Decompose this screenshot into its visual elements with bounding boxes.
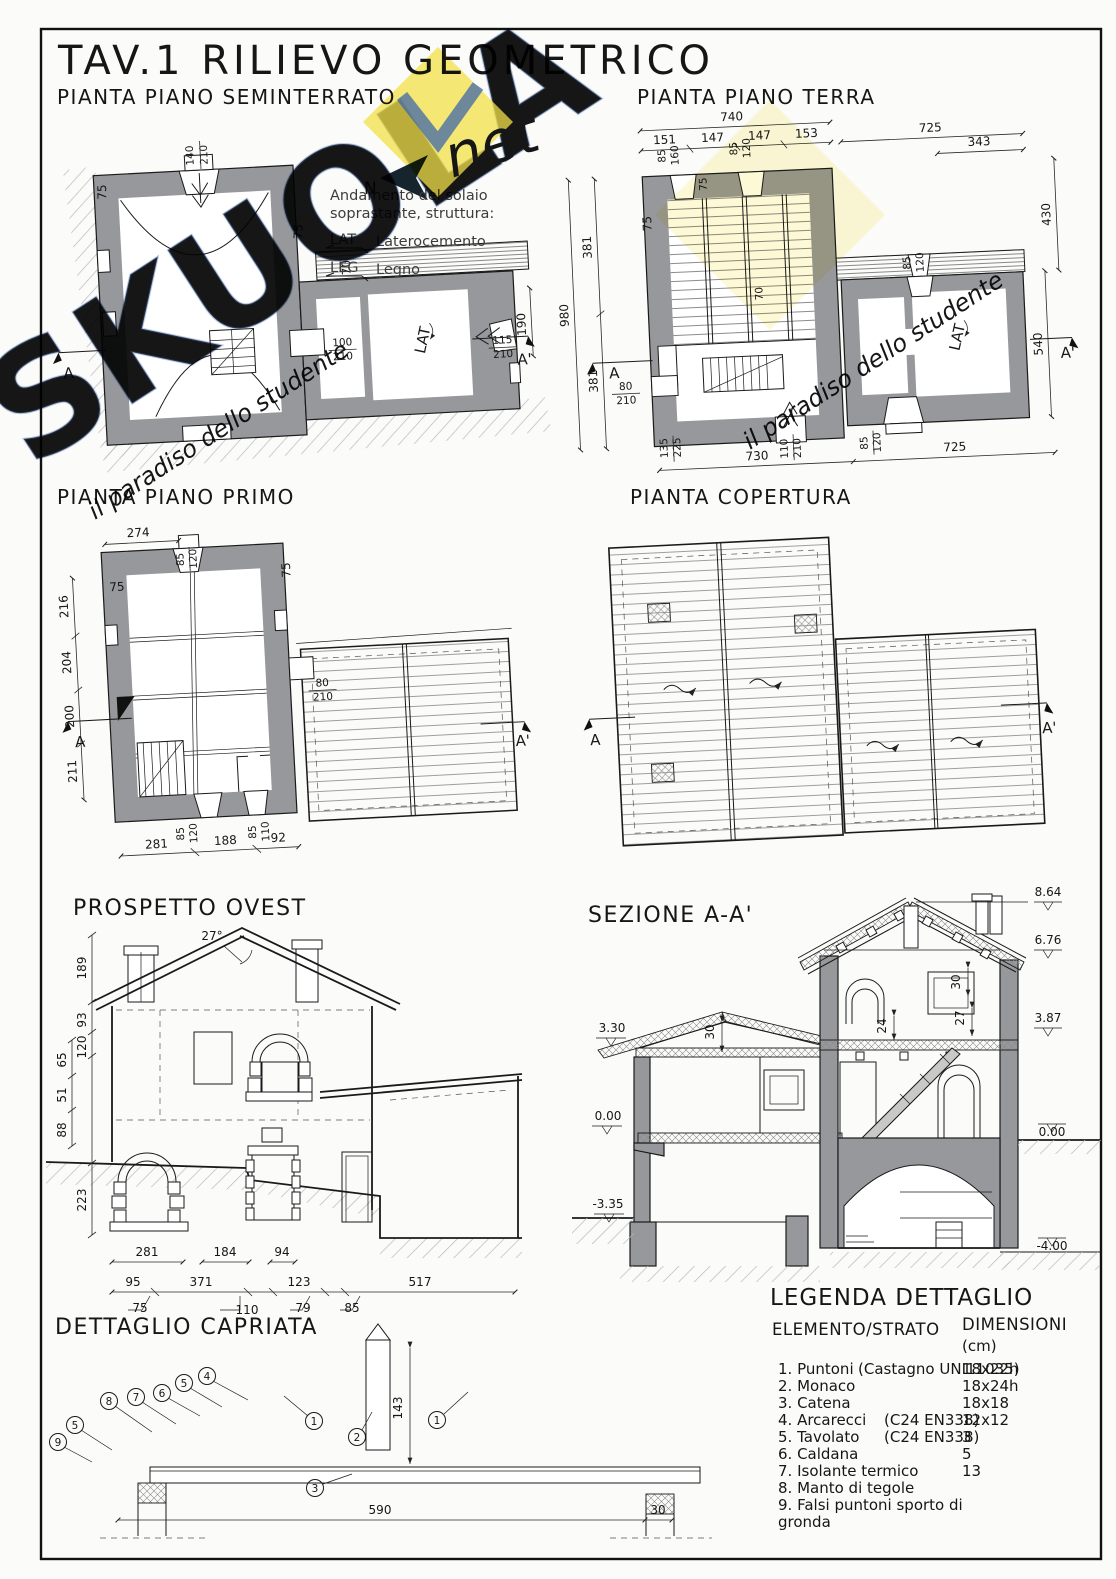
prospetto-title: PROSPETTO OVEST <box>73 896 307 921</box>
terra-dim-740: 740 <box>720 109 744 124</box>
stone <box>112 1196 126 1208</box>
sez-level-335: -3.35 <box>592 1197 623 1211</box>
prospetto-drawing: 189 93 120 65 51 88 223 27° <box>46 928 522 1258</box>
legenda-row-dim: 18x18 <box>962 1394 1009 1412</box>
ground-hatch <box>572 1218 634 1244</box>
footing <box>786 1216 808 1266</box>
joist-end <box>900 1052 908 1060</box>
callout-9: 9 <box>55 1437 62 1449</box>
primo-plan: 274 85 120 75 75 216 204 200 211 A A' 80… <box>52 506 537 863</box>
terra-dim-120t: 120 <box>741 138 754 159</box>
cap-dim-517: 517 <box>409 1275 432 1289</box>
legenda-row-label: 9. Falsi puntoni sporto di <box>778 1496 963 1514</box>
terra-marker-a1: A' <box>1060 343 1075 362</box>
sez-level-676: 6.76 <box>1035 933 1062 947</box>
stoop <box>886 422 922 434</box>
annex-dashed <box>390 1090 510 1100</box>
legenda-row-label: 3. Catena <box>778 1394 851 1412</box>
cap-dim-75: 75 <box>132 1301 147 1315</box>
terra-dim-85t: 85 <box>656 149 669 163</box>
chimney <box>794 614 817 633</box>
ground-hatch <box>1018 1140 1102 1154</box>
callout-4: 4 <box>204 1371 211 1383</box>
callout-3: 3 <box>312 1483 319 1495</box>
terra-plan: 740 151 147 147 153 725 343 980 381 381 … <box>548 94 1083 474</box>
seminterrato-plan: 140 210 75 75 70 190 100 210 115 210 LAT… <box>42 123 552 474</box>
primo-dim-211: 211 <box>65 760 80 784</box>
primo-wall-75l: 75 <box>109 579 125 594</box>
ceiling-slab <box>636 1048 836 1057</box>
ground-hatch <box>620 1266 820 1282</box>
cap-dim-184: 184 <box>214 1245 237 1259</box>
level-icon <box>592 1126 622 1134</box>
primo-dim-274: 274 <box>126 525 150 540</box>
section-line <box>593 361 653 364</box>
legenda-row-label: 7. Isolante termico <box>778 1462 918 1480</box>
legenda-row-label: 6. Caldana <box>778 1445 858 1463</box>
door-splay <box>882 396 923 424</box>
roof-main <box>609 537 843 845</box>
primo-dim-200: 200 <box>62 705 77 729</box>
section-arrow-icon <box>525 336 535 347</box>
sez-dim-30b: 30 <box>949 974 963 989</box>
sez-dim-30a: 30 <box>703 1024 717 1039</box>
copertura-title: PIANTA COPERTURA <box>630 485 852 509</box>
chimney-cap <box>292 940 322 949</box>
sez-level-387: 3.87 <box>1035 1011 1062 1025</box>
terra-dim-160: 160 <box>669 145 682 166</box>
window-recess <box>178 535 199 549</box>
window-splay <box>738 171 765 196</box>
terra-dim-147: 147 <box>701 130 725 145</box>
stone <box>114 1210 126 1222</box>
arched-window <box>846 979 884 1024</box>
cap-dim-94: 94 <box>274 1245 289 1259</box>
sem-marker-a1: A' <box>517 350 532 369</box>
annex-roof-line <box>320 1074 522 1098</box>
roof-slab <box>908 902 1024 970</box>
room <box>118 190 281 420</box>
sheet-title: TAV.1 RILIEVO GEOMETRICO <box>57 38 714 84</box>
note-leg-label: Legno <box>376 262 420 278</box>
legenda-col2: DIMENSIONI <box>962 1315 1067 1334</box>
note-lat-abbr: LAT <box>330 232 356 248</box>
joist-end <box>856 1052 864 1060</box>
wall-section <box>1000 960 1018 1248</box>
terra-dim-730: 730 <box>745 448 769 463</box>
terra-wall-70: 70 <box>753 287 766 301</box>
section-arrow-icon <box>52 353 62 364</box>
level-icon <box>1034 1028 1062 1036</box>
wall-section <box>820 956 838 1248</box>
legenda-row-dim: 13 <box>962 1462 981 1480</box>
pro-dim-189: 189 <box>75 957 89 980</box>
lintel <box>248 1146 298 1155</box>
primo-dim-80: 80 <box>315 677 329 690</box>
monaco-head <box>366 1324 390 1340</box>
legenda-row-dim: 3 <box>962 1428 972 1446</box>
primo-wall-75r: 75 <box>279 562 294 578</box>
ground-hatch <box>380 1238 522 1258</box>
cap-dim-590: 590 <box>369 1503 392 1517</box>
stone <box>246 1176 254 1188</box>
wall-niche <box>102 312 116 337</box>
terra-dim-980: 980 <box>557 304 572 328</box>
stone <box>246 1192 254 1204</box>
callout-5b: 5 <box>72 1420 79 1432</box>
cap-dim-79: 79 <box>295 1301 310 1315</box>
terra-dim-85b: 85 <box>858 436 871 450</box>
dim-line <box>1054 158 1059 270</box>
sem-wall-75: 75 <box>291 224 306 240</box>
drawing-canvas: TAV.1 RILIEVO GEOMETRICO PIANTA PIANO SE… <box>0 0 1116 1579</box>
floor-slab <box>638 1133 842 1143</box>
legenda-col2b: (cm) <box>962 1337 997 1355</box>
cap-dim-143: 143 <box>391 1397 405 1420</box>
legenda-row-label: 1. Puntoni <box>778 1360 854 1378</box>
king-post <box>904 906 918 948</box>
primo-marker-a: A <box>75 733 87 752</box>
primo-dim-92: 92 <box>270 830 286 845</box>
note-leg-abbr: LEG <box>330 260 358 276</box>
primo-dim-85b2: 85 <box>247 825 260 839</box>
pro-dim-223: 223 <box>75 1189 89 1212</box>
terra-wall-75t: 75 <box>697 177 710 191</box>
roof-annex <box>836 629 1045 833</box>
pro-dim-120: 120 <box>75 1036 89 1059</box>
sem-wall-75: 75 <box>95 184 109 200</box>
legenda: LEGENDA DETTAGLIO ELEMENTO/STRATO DIMENS… <box>770 1285 1067 1531</box>
window-pane <box>770 1076 798 1104</box>
sill <box>246 1092 312 1101</box>
terra-dim-151: 151 <box>653 132 677 147</box>
terra-dim-381a: 381 <box>580 236 595 260</box>
primo-dim-281: 281 <box>145 837 169 852</box>
sezione-drawing: 3.30 0.00 -3.35 8.64 6.76 3.87 0.00 -4.0… <box>572 885 1102 1282</box>
legenda-row-label: 4. Arcarecci <box>778 1411 866 1429</box>
cap-dim-30: 30 <box>650 1503 665 1517</box>
cap-dim-281: 281 <box>136 1245 159 1259</box>
drawing-sheet: TAV.1 RILIEVO GEOMETRICO PIANTA PIANO SE… <box>0 0 1116 1579</box>
dim-line <box>937 150 1023 154</box>
seminterrato-title: PIANTA PIANO SEMINTERRATO <box>57 85 396 109</box>
watermark-logo-chevron-icon <box>402 86 478 142</box>
window-splay <box>907 276 934 297</box>
terra-dim-343: 343 <box>967 134 991 149</box>
legenda-row-label: 8. Manto di tegole <box>778 1479 914 1497</box>
terra-dim-430: 430 <box>1039 203 1054 227</box>
level-icon <box>1034 902 1062 910</box>
copertura-plan: A A' <box>575 527 1061 848</box>
bottom-opening <box>182 424 231 441</box>
watermark-script: net <box>435 97 549 192</box>
legenda-row-dim: 18x24h <box>962 1377 1019 1395</box>
terra-dim-85t2: 85 <box>728 142 741 156</box>
small-window <box>262 1128 282 1142</box>
primo-dim-110b: 110 <box>259 821 272 842</box>
legenda-row-label: 2. Monaco <box>778 1377 855 1395</box>
legenda-row-gronda: gronda <box>778 1513 831 1531</box>
legenda-row-dim: 12x12 <box>962 1411 1009 1429</box>
primo-title: PIANTA PIANO PRIMO <box>57 485 295 509</box>
stone <box>292 1176 300 1188</box>
annex-room <box>858 297 908 395</box>
cap-dim-95: 95 <box>125 1275 140 1289</box>
rafter-line <box>808 916 914 974</box>
dim-line <box>841 134 1023 142</box>
chimney <box>651 763 674 782</box>
primo-dim-85b: 85 <box>175 827 188 841</box>
terra-wall-75: 75 <box>640 216 655 232</box>
ground-hatch <box>830 1252 1010 1268</box>
section-arrow-icon <box>1044 703 1054 714</box>
threshold <box>110 1222 188 1231</box>
primo-dim-188: 188 <box>214 833 238 848</box>
sem-marker-a: A <box>63 364 75 383</box>
primo-dim-85t: 85 <box>174 552 187 566</box>
chimney-cap <box>972 894 992 901</box>
window-pane <box>262 1062 298 1092</box>
terra-dim-725b: 725 <box>943 439 967 454</box>
sez-level-330: 3.30 <box>599 1021 626 1035</box>
terra-dim-135: 135 <box>658 438 671 459</box>
sez-dim-24: 24 <box>875 1018 889 1033</box>
primo-dim-210: 210 <box>313 691 334 704</box>
pro-dim-88: 88 <box>55 1122 69 1137</box>
stone <box>248 1078 261 1092</box>
primo-dim-216: 216 <box>56 595 71 619</box>
support-wall <box>138 1483 674 1536</box>
tile-line <box>914 898 1026 958</box>
wall-niche <box>97 250 110 273</box>
door-gap <box>903 329 916 356</box>
sem-dim-115: 115 <box>492 334 513 347</box>
terra-dim-153: 153 <box>795 126 819 141</box>
roof-slab <box>800 902 912 970</box>
sez-dim-27: 27 <box>953 1010 967 1025</box>
callout-1: 1 <box>311 1416 318 1428</box>
callout-6: 6 <box>159 1388 166 1400</box>
sez-level-000l: 0.00 <box>595 1109 622 1123</box>
pro-angle: 27° <box>201 929 222 943</box>
window-splay <box>670 174 697 199</box>
callout-5: 5 <box>181 1378 188 1390</box>
dim-line <box>1045 271 1052 417</box>
callout-7: 7 <box>133 1392 140 1404</box>
primo-dim-120b: 120 <box>187 823 200 844</box>
stair-flight <box>860 1048 960 1146</box>
capriata-title: DETTAGLIO CAPRIATA <box>55 1315 318 1340</box>
terra-dim-120r: 120 <box>914 252 927 273</box>
pro-dim-93: 93 <box>75 1012 89 1027</box>
annex-roof <box>300 638 517 821</box>
legenda-row-dim: 18x22h <box>962 1360 1019 1378</box>
terra-title: PIANTA PIANO TERRA <box>637 85 876 109</box>
callout-1b: 1 <box>434 1415 441 1427</box>
level-icon <box>1034 950 1062 958</box>
terra-dim-80: 80 <box>619 381 633 394</box>
terra-dim-725t: 725 <box>919 120 943 135</box>
cap-dim-123: 123 <box>288 1275 311 1289</box>
sez-level-864: 8.64 <box>1035 885 1062 899</box>
primo-marker-a1: A' <box>515 731 530 750</box>
sem-dim-210: 210 <box>493 348 514 361</box>
chimney <box>296 946 318 1002</box>
door-gap <box>290 329 325 357</box>
door-gap <box>651 375 678 396</box>
legenda-row-label: 5. Tavolato <box>778 1428 859 1446</box>
sezione-title: SEZIONE A-A' <box>588 903 753 928</box>
arched-window <box>252 1034 308 1062</box>
stone <box>299 1062 310 1076</box>
sem-dim-190: 190 <box>514 313 529 337</box>
callout-2: 2 <box>354 1432 361 1444</box>
cap-dim-110: 110 <box>236 1303 259 1317</box>
section-arrow-icon <box>583 719 593 730</box>
legenda-col1: ELEMENTO/STRATO <box>772 1320 940 1339</box>
stone <box>250 1062 261 1076</box>
chimney <box>648 603 671 622</box>
chimney <box>976 900 988 934</box>
wall-niche <box>105 625 118 646</box>
cap-dim-371: 371 <box>190 1275 213 1289</box>
terra-dim-210: 210 <box>616 394 637 407</box>
door-gap <box>289 657 314 680</box>
stone <box>114 1182 126 1194</box>
note-lat-label: Laterocemento <box>376 234 486 250</box>
note-line1: Andamento del solaio <box>330 188 488 204</box>
sem-dim-210: 210 <box>333 350 354 363</box>
pro-dim-65: 65 <box>55 1052 69 1067</box>
joist-floor <box>667 193 815 345</box>
stone <box>246 1160 254 1172</box>
legenda-row-dim: 5 <box>962 1445 972 1463</box>
stone <box>292 1208 300 1220</box>
dim-line <box>105 541 179 545</box>
terra-marker-a: A <box>609 364 621 382</box>
stone <box>246 1208 254 1220</box>
monaco-post <box>366 1340 390 1450</box>
ground-hatch <box>1000 1252 1100 1270</box>
sem-dim-140: 140 <box>184 145 197 166</box>
cap-dim-85: 85 <box>344 1301 359 1315</box>
arched-door <box>938 1065 980 1138</box>
stone <box>168 1182 180 1194</box>
masonry-block <box>138 1483 166 1503</box>
sem-dim-100: 100 <box>332 336 353 349</box>
cop-marker-a1: A' <box>1042 719 1057 738</box>
legenda-title: LEGENDA DETTAGLIO <box>770 1285 1033 1311</box>
stone <box>299 1078 312 1092</box>
terra-dim-85r: 85 <box>901 256 914 270</box>
tile-line <box>798 898 906 958</box>
window <box>194 1032 232 1084</box>
stone <box>292 1192 300 1204</box>
door <box>840 1062 876 1138</box>
angle-leader <box>224 946 252 964</box>
stone <box>168 1210 180 1222</box>
cop-marker-a: A <box>590 731 602 750</box>
primo-dim-204: 204 <box>59 651 74 675</box>
stone <box>292 1160 300 1172</box>
stone <box>170 1196 184 1208</box>
terra-dim-110: 110 <box>778 438 791 459</box>
terra-dim-540: 540 <box>1031 332 1046 356</box>
pro-dim-51: 51 <box>55 1087 69 1102</box>
callout-8: 8 <box>106 1396 113 1408</box>
floor-slab <box>820 1040 1018 1050</box>
catena-beam <box>150 1467 700 1483</box>
note-line2: soprastante, struttura: <box>330 206 494 222</box>
wall-niche <box>274 610 287 631</box>
